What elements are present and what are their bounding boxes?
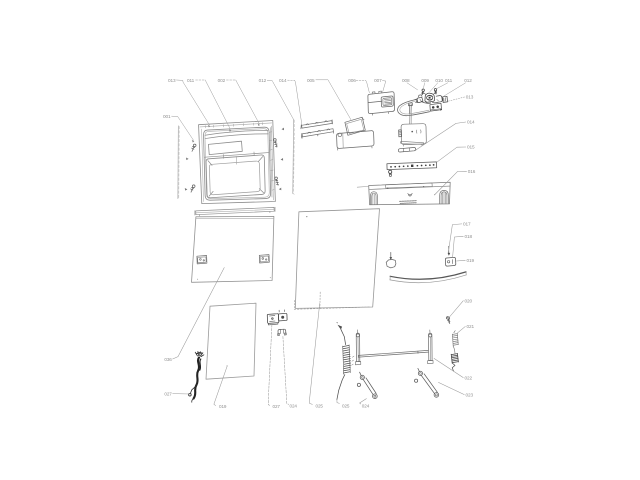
svg-text:010: 010 xyxy=(435,78,443,83)
svg-text:005: 005 xyxy=(307,78,315,83)
svg-text:012: 012 xyxy=(464,78,472,83)
svg-text:006: 006 xyxy=(348,78,356,83)
svg-text:027: 027 xyxy=(273,404,281,409)
svg-text:011: 011 xyxy=(187,78,195,83)
svg-text:009: 009 xyxy=(421,78,429,83)
svg-text:024: 024 xyxy=(362,403,370,408)
svg-text:002: 002 xyxy=(218,78,226,83)
svg-text:011: 011 xyxy=(445,78,453,83)
svg-text:008: 008 xyxy=(402,78,410,83)
svg-text:001: 001 xyxy=(163,114,171,119)
svg-text:021: 021 xyxy=(467,324,475,329)
svg-text:027: 027 xyxy=(164,392,172,397)
svg-text:007: 007 xyxy=(374,78,382,83)
svg-text:020: 020 xyxy=(465,299,473,304)
svg-text:025: 025 xyxy=(316,403,324,408)
svg-text:013: 013 xyxy=(466,95,474,100)
svg-text:022: 022 xyxy=(465,376,473,381)
svg-text:019: 019 xyxy=(467,258,475,263)
svg-text:012: 012 xyxy=(259,78,267,83)
svg-text:018: 018 xyxy=(465,234,473,239)
svg-text:015: 015 xyxy=(467,145,475,150)
svg-text:014: 014 xyxy=(467,120,475,125)
svg-text:017: 017 xyxy=(463,222,471,227)
svg-text:025: 025 xyxy=(342,403,350,408)
svg-text:036: 036 xyxy=(164,357,172,362)
svg-text:016: 016 xyxy=(468,169,476,174)
svg-text:013: 013 xyxy=(168,78,176,83)
svg-text:024: 024 xyxy=(290,403,298,408)
svg-text:023: 023 xyxy=(466,393,474,398)
svg-text:019: 019 xyxy=(219,404,227,409)
svg-text:014: 014 xyxy=(279,78,287,83)
